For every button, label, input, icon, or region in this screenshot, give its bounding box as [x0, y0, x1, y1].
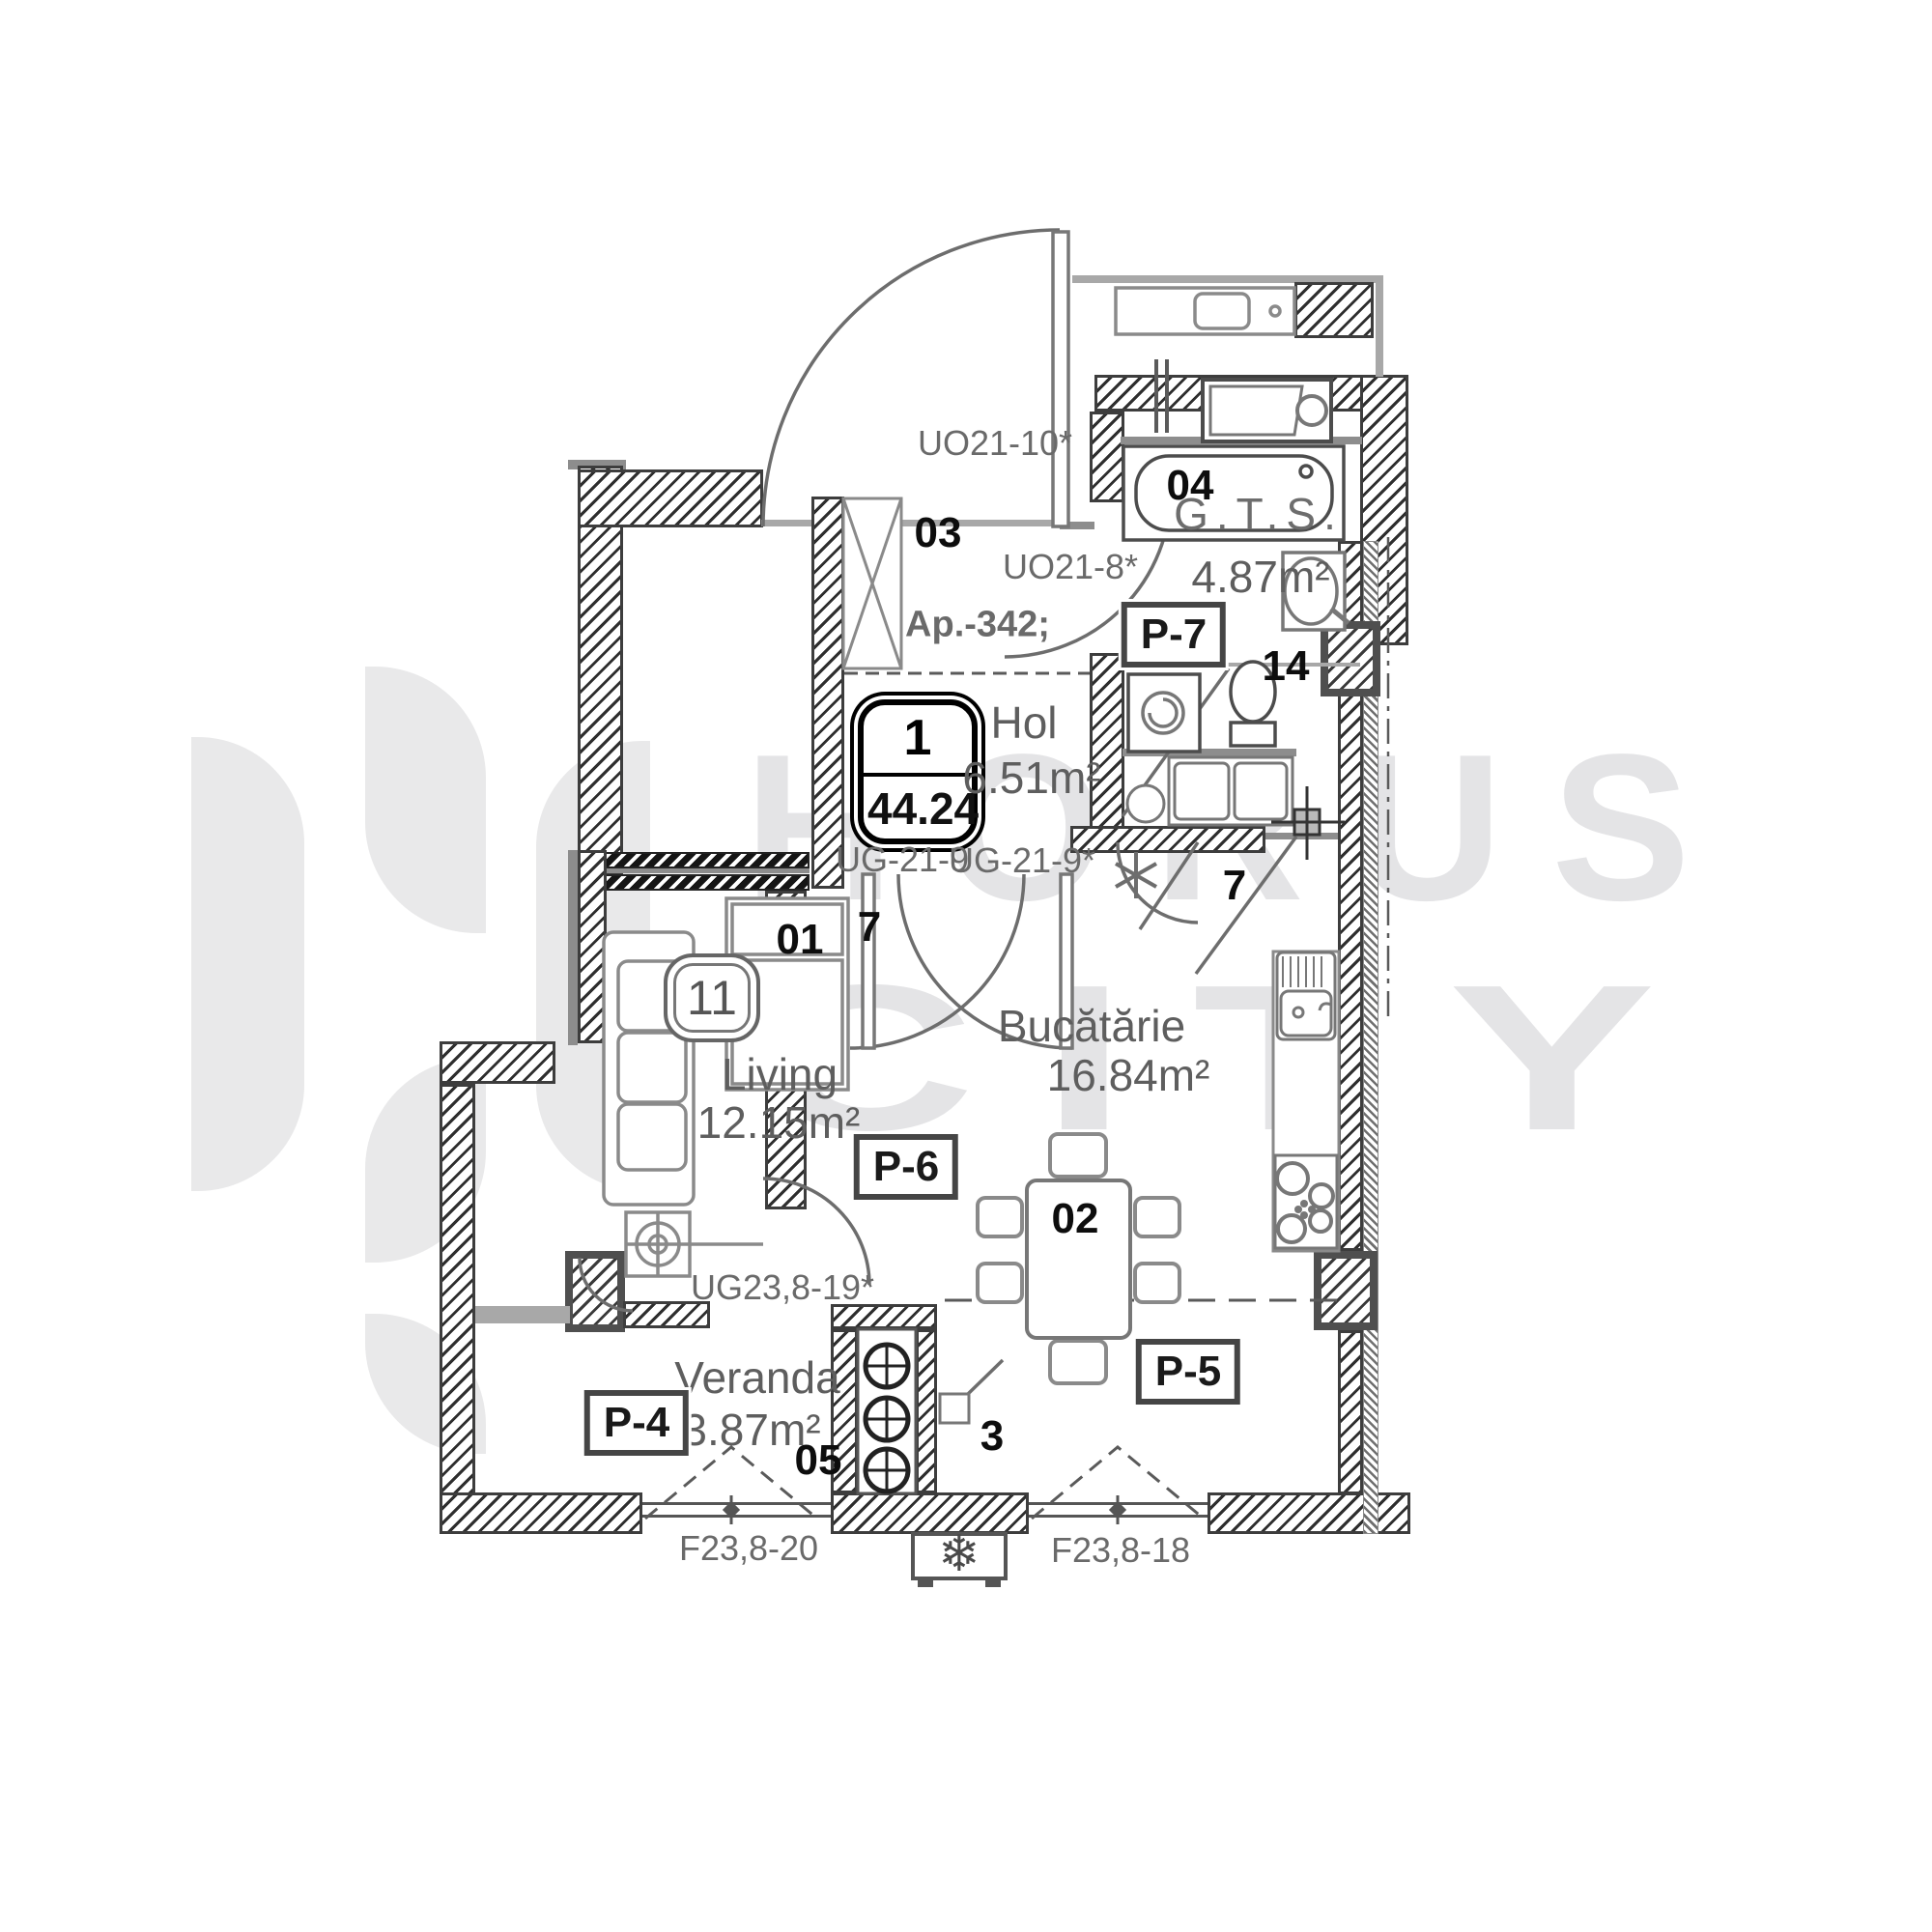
wc-number: 14 — [1263, 642, 1310, 691]
vanity-sinks-icon — [1127, 757, 1293, 825]
door-label-bath: UO21-8* — [1003, 547, 1138, 587]
hob-icon — [1275, 1155, 1337, 1248]
room1-number: 01 — [777, 916, 824, 964]
panel-p5: P-5 — [1136, 1339, 1240, 1405]
ac-unit-icon: ❄ — [913, 1525, 1006, 1585]
door-label-kitchen: UG-21-9* — [949, 840, 1095, 881]
window-label-veranda: F23,8-20 — [679, 1528, 818, 1569]
hol-name: Hol — [990, 696, 1057, 749]
furniture-badge: 11 — [664, 953, 760, 1042]
kitchen-sink-icon — [1277, 952, 1335, 1039]
room3-number: 03 — [915, 509, 962, 557]
door-number-living: 7 — [858, 903, 881, 952]
room5-area: 3.87m² — [682, 1404, 820, 1456]
room5-name: Veranda — [674, 1351, 839, 1404]
vestibule-sink-icon — [1116, 288, 1294, 334]
panel-p7: P-7 — [1122, 602, 1226, 668]
vent-shaft-icon — [858, 1329, 916, 1493]
room4-name: G.T.S. — [1174, 488, 1344, 540]
room2-area: 16.84m² — [1047, 1049, 1210, 1101]
room1-name: Living — [722, 1048, 838, 1100]
door-number-veranda: 3 — [980, 1412, 1004, 1461]
washer-icon — [1203, 380, 1331, 441]
leader-line — [966, 1360, 1003, 1396]
apartment-number: 1 — [864, 705, 972, 777]
wc-washer-icon — [1128, 674, 1200, 752]
apartment-ref: Ap.-342; — [905, 605, 1050, 646]
window-label-kitchen: F23,8-18 — [1051, 1530, 1190, 1571]
entry-door-swing — [763, 230, 1068, 526]
furniture-badge-value: 11 — [687, 970, 737, 1026]
apartment-area: 44.24 — [864, 777, 972, 838]
room2-name: Bucătărie — [998, 1000, 1185, 1052]
panel-p6: P-6 — [854, 1134, 958, 1200]
plan-linework: ❄ — [0, 0, 1932, 1932]
door-label-veranda: UG23,8-19* — [691, 1267, 874, 1308]
hol-area: 6.51m² — [962, 752, 1100, 804]
apartment-badge: 1 44.24 — [858, 699, 978, 844]
room1-area: 12.15m² — [697, 1096, 861, 1149]
svg-text:❄: ❄ — [938, 1525, 980, 1583]
asterisk-symbol-icon — [1116, 852, 1156, 898]
room4-area: 4.87m² — [1191, 551, 1329, 603]
wardrobe-icon — [843, 498, 901, 668]
floor-plan-canvas: HORUS CITY — [0, 0, 1932, 1932]
room2-number: 02 — [1052, 1195, 1099, 1243]
door-label-entry: UO21-10* — [918, 423, 1072, 464]
kitchen-door-swing — [1118, 842, 1198, 929]
door-number-kitchen: 7 — [1223, 862, 1246, 910]
switch-box-icon — [940, 1394, 969, 1423]
panel-p4: P-4 — [584, 1390, 689, 1456]
window-ticks — [724, 1495, 1124, 1524]
